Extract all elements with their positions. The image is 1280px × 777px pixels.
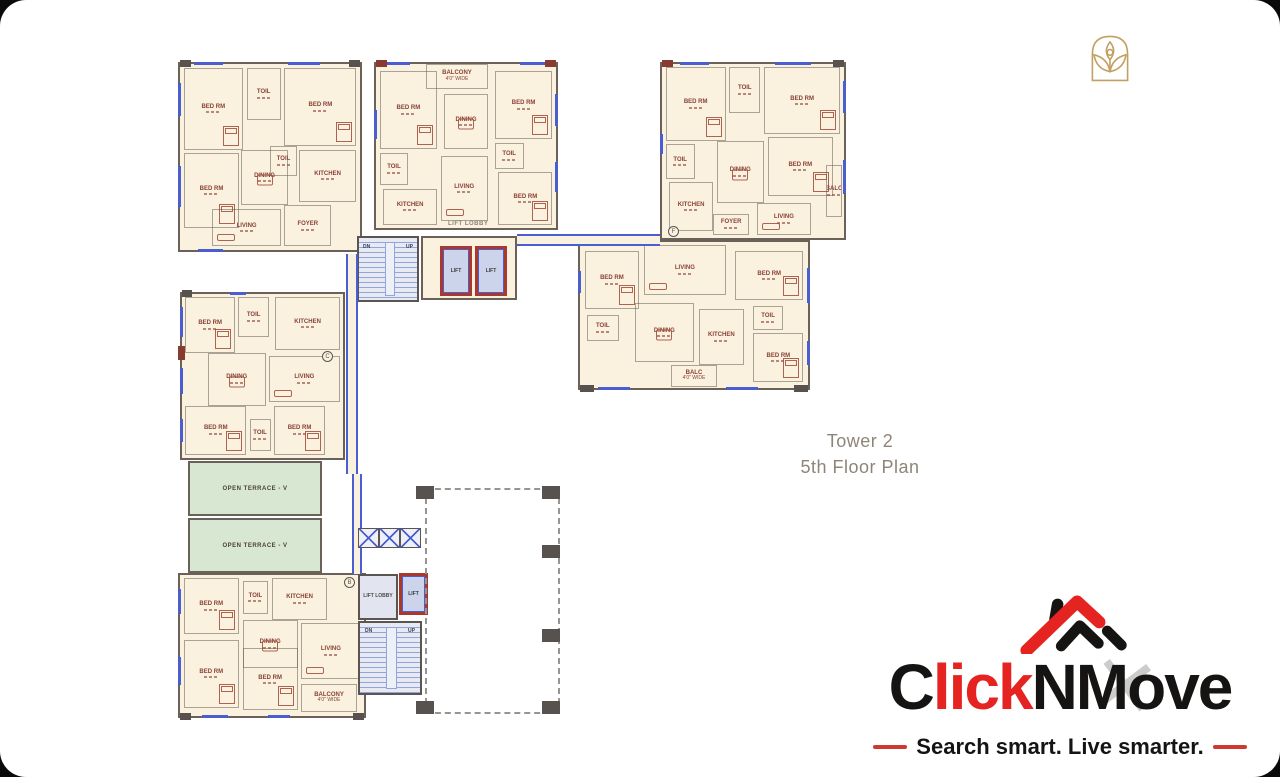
room-label: FOYER (721, 219, 742, 226)
wall-column (182, 290, 192, 297)
corridor-spine-lower (352, 474, 362, 574)
window-strip (180, 368, 183, 394)
room-dim-mark (257, 97, 271, 99)
room-dim-mark (209, 433, 223, 435)
room-toil: TOIL (238, 297, 269, 336)
bed-furniture (783, 276, 799, 296)
window-strip (726, 387, 758, 390)
room-dim-mark (678, 273, 692, 275)
terrace-label: OPEN TERRACE - V (222, 486, 287, 492)
room-dining: DINING (444, 94, 487, 150)
column (542, 701, 560, 714)
wing-middle-left: BED RMTOILKITCHENDININGLIVINGBED RMTOILB… (180, 292, 345, 460)
bed-furniture (820, 110, 836, 130)
window-strip (807, 341, 810, 364)
wall-column (180, 713, 191, 720)
window-strip (598, 387, 630, 390)
bed-furniture (706, 117, 722, 137)
room-label: BED RM (757, 271, 781, 278)
room-kitchen: KITCHEN (275, 297, 339, 349)
window-strip (180, 419, 183, 442)
room-dim-mark (313, 110, 327, 112)
window-strip (180, 307, 183, 337)
room-dim-mark (263, 682, 277, 684)
room-foyer: FOYER (713, 214, 749, 235)
room-label: FOYER (297, 221, 318, 228)
room-living: LIVING (441, 156, 488, 222)
south-lift-lobby: LIFT LOBBY (358, 574, 398, 620)
room-label: BED RM (397, 105, 421, 112)
void-outline (425, 488, 560, 714)
room-dim-mark (387, 172, 401, 174)
bed-furniture (223, 126, 239, 146)
room-label: TOIL (596, 323, 610, 330)
corridor-east (517, 234, 660, 246)
room-dim-mark (247, 320, 261, 322)
room-kitchen: KITCHEN (669, 182, 713, 231)
room-dim-mark (204, 609, 218, 611)
room-dim-mark (293, 602, 307, 604)
room-toil: TOIL (729, 67, 760, 112)
shaft-cell (400, 528, 421, 548)
room-dim-mark (301, 326, 315, 328)
bed-furniture (532, 201, 548, 221)
room-label: BED RM (309, 102, 333, 109)
tower-title: Tower 2 5th Floor Plan (770, 428, 950, 480)
room-bed-rm: BED RM (753, 333, 803, 383)
room-dim-mark (321, 178, 335, 180)
sofa-furniture (649, 283, 667, 290)
room-dim-mark (596, 331, 610, 333)
room-bed-rm: BED RM (184, 640, 239, 708)
room-label: KITCHEN (314, 171, 341, 178)
room-living: LIVING (757, 203, 812, 234)
room-dim-mark (714, 340, 728, 342)
room-dim-mark (248, 600, 262, 602)
room-toil: TOIL (753, 306, 783, 329)
window-strip (194, 62, 223, 65)
lift-3-label: LIFT (408, 591, 419, 597)
room-dim-mark (297, 382, 311, 384)
developer-emblem-icon (1086, 31, 1134, 85)
room-dim-mark (795, 103, 809, 105)
room-dim-mark (253, 438, 267, 440)
room-bed-rm: BED RM (185, 297, 235, 353)
room-kitchen: KITCHEN (699, 309, 745, 364)
column (542, 545, 560, 558)
sofa-furniture (274, 390, 292, 397)
room-bed-rm: BED RM (274, 406, 326, 455)
window-strip (385, 62, 410, 65)
room-label: TOIL (253, 430, 267, 437)
service-shafts (358, 528, 421, 548)
bed-furniture (417, 125, 433, 145)
room-bed-rm: BED RM (666, 67, 726, 140)
window-strip (660, 134, 663, 155)
room-dim-mark (502, 159, 516, 161)
room-dim-mark (762, 278, 776, 280)
window-strip (230, 292, 246, 295)
room-dim-mark (301, 229, 315, 231)
window-strip (843, 81, 846, 112)
reference-marker: C (322, 351, 333, 362)
stair-dn-label: DN (365, 628, 372, 634)
room-dim-mark (827, 194, 841, 196)
room-label: LIVING (774, 214, 794, 221)
tagline-dash-left (873, 745, 907, 749)
room-label: LIVING (454, 184, 474, 191)
wall-column (353, 713, 364, 720)
room-bed-rm: BED RM (185, 406, 246, 455)
room-balc: BALC (826, 165, 842, 217)
lift-2-label: LIFT (486, 268, 497, 274)
open-terrace: OPEN TERRACE - V (188, 518, 322, 573)
room-label: TOIL (761, 313, 775, 320)
room-bed-rm: BED RM (495, 71, 553, 140)
sofa-furniture (762, 223, 780, 230)
sofa-furniture (306, 667, 324, 674)
room-dim-mark (761, 321, 775, 323)
room-toil: TOIL (666, 144, 695, 179)
room-kitchen: KITCHEN (272, 578, 327, 620)
room-label: LIVING (321, 646, 341, 653)
column (416, 486, 434, 499)
room-label: TOIL (247, 312, 261, 319)
corridor-spine (346, 254, 358, 474)
bed-furniture (619, 285, 635, 305)
window-strip (178, 589, 181, 614)
room-kitchen: KITCHEN (299, 150, 357, 202)
tagline-dash-right (1213, 745, 1247, 749)
reference-marker: F (668, 226, 679, 237)
room-dim-mark (206, 111, 220, 113)
sofa-furniture (446, 209, 464, 216)
room-dining: DINING (635, 303, 694, 361)
room-bed-rm: BED RM (498, 172, 552, 224)
room-label: TOIL (387, 164, 401, 171)
window-strip (202, 715, 228, 718)
wall-column (349, 60, 360, 67)
brand-word-part2: lick (933, 651, 1032, 723)
terrace-label: OPEN TERRACE - V (222, 543, 287, 549)
tower-title-line1: Tower 2 (770, 428, 950, 454)
room-balcony: BALCONY4'0" WIDE (301, 684, 356, 712)
window-strip (843, 160, 846, 195)
wing-top-right: BED RMTOILBED RMTOILKITCHENDININGBED RML… (660, 62, 846, 240)
tower-title-line2: 5th Floor Plan (770, 454, 950, 480)
room-toil: TOIL (250, 419, 271, 452)
bed-furniture (783, 358, 799, 378)
bed-furniture (226, 431, 242, 451)
room-balc: BALC4'0" WIDE (671, 365, 717, 387)
room-label: BED RM (600, 275, 624, 282)
brand-tagline: Search smart. Live smarter. (916, 734, 1203, 760)
room-dining: DINING (208, 353, 266, 405)
room-living: LIVING (644, 245, 726, 295)
room-bed-rm: BED RM (243, 648, 298, 710)
room-dim-label: 4'0" WIDE (683, 376, 706, 382)
shaft-cell (358, 528, 379, 548)
room-label: BED RM (788, 162, 812, 169)
wall-column (580, 385, 594, 392)
bed-furniture (305, 431, 321, 451)
window-strip (578, 271, 581, 293)
window-strip (680, 62, 709, 65)
window-strip (178, 83, 181, 116)
window-strip (178, 657, 181, 685)
room-label: BED RM (514, 194, 538, 201)
room-label: BED RM (199, 669, 223, 676)
south-lift-lobby-label: LIFT LOBBY (363, 594, 392, 600)
room-bed-rm: BED RM (735, 251, 803, 301)
table-furniture (458, 119, 474, 130)
brand-wordmark: ClickNMove (858, 650, 1262, 724)
room-label: BED RM (258, 675, 282, 682)
sofa-furniture (217, 234, 235, 241)
room-label: TOIL (249, 593, 263, 600)
window-strip (374, 110, 377, 140)
room-label: KITCHEN (286, 594, 313, 601)
room-label: BED RM (198, 320, 222, 327)
room-living: LIVING (269, 356, 340, 402)
room-dim-mark (689, 107, 703, 109)
bed-furniture (278, 686, 294, 706)
bed-furniture (336, 122, 352, 142)
room-label: LIVING (237, 223, 257, 230)
window-strip (198, 249, 223, 252)
lift-1-label: LIFT (451, 268, 462, 274)
window-strip (268, 715, 290, 718)
room-dim-label: 4'0" WIDE (446, 77, 469, 83)
room-dim-mark (204, 193, 218, 195)
wall-column (833, 60, 844, 67)
room-dim-mark (204, 676, 218, 678)
wing-bottom-left: BED RMTOILKITCHENDININGLIVINGBED RMBED R… (178, 573, 366, 718)
room-label: BED RM (200, 186, 224, 193)
shaft-cell (379, 528, 400, 548)
bed-furniture (532, 115, 548, 135)
table-furniture (732, 169, 748, 180)
room-foyer: FOYER (284, 205, 331, 246)
room-dim-mark (401, 113, 415, 115)
column (542, 486, 560, 499)
window-strip (775, 62, 811, 65)
room-label: LIVING (294, 374, 314, 381)
window-strip (178, 166, 181, 207)
room-bed-rm: BED RM (380, 71, 438, 150)
window-strip (555, 162, 558, 192)
room-dim-mark (724, 227, 738, 229)
open-terrace: OPEN TERRACE - V (188, 461, 322, 516)
brand-word-part3: NMove (1032, 651, 1232, 723)
floor-plan-card: BED RMTOILBED RMBED RMTOILDININGKITCHENL… (0, 0, 1280, 777)
room-label: TOIL (257, 89, 271, 96)
room-dim-mark (240, 230, 254, 232)
room-toil: TOIL (495, 143, 524, 169)
brand-word-part1: C (889, 651, 933, 723)
room-dim-mark (324, 654, 338, 656)
room-living: LIVING (212, 209, 280, 246)
room-bed-rm: BED RM (768, 137, 834, 196)
wing-top-middle: BALCONY4'0" WIDEBED RMBED RMDININGTOILKI… (374, 62, 558, 230)
room-kitchen: KITCHEN (383, 189, 437, 225)
wall-column (545, 60, 556, 67)
room-dim-mark (793, 169, 807, 171)
room-bed-rm: BED RM (284, 68, 356, 146)
room-label: BED RM (204, 425, 228, 432)
room-label: KITCHEN (294, 319, 321, 326)
window-strip (288, 62, 320, 65)
room-label: BED RM (512, 100, 536, 107)
room-label: TOIL (673, 157, 687, 164)
bed-furniture (219, 684, 235, 704)
lift-2: LIFT (475, 246, 507, 296)
reference-marker: B (344, 577, 355, 588)
room-label: BED RM (201, 104, 225, 111)
room-dim-mark (518, 201, 532, 203)
lift-lobby-label: LIFT LOBBY (448, 221, 488, 227)
wall-column (376, 60, 387, 67)
wing-top-left: BED RMTOILBED RMBED RMTOILDININGKITCHENL… (178, 62, 362, 252)
window-strip (520, 62, 545, 65)
stair-up-label: UP (408, 628, 415, 634)
room-dining: DINING (241, 150, 288, 206)
lift-1: LIFT (440, 246, 472, 296)
room-dim-mark (738, 93, 752, 95)
room-dim-mark (457, 191, 471, 193)
room-bed-rm: BED RM (184, 68, 243, 150)
room-label: TOIL (738, 85, 752, 92)
bed-furniture (215, 329, 231, 349)
room-label: BALC (826, 186, 842, 193)
room-toil: TOIL (380, 153, 409, 186)
wall-column (662, 60, 673, 67)
room-toil: TOIL (247, 68, 281, 120)
room-toil: TOIL (243, 581, 269, 615)
column (416, 701, 434, 714)
south-staircase: UP DN (358, 621, 422, 695)
room-label: BED RM (199, 601, 223, 608)
tagline-row: Search smart. Live smarter. (858, 734, 1262, 760)
room-label: BED RM (684, 99, 708, 106)
wall-column (794, 385, 808, 392)
stair-dn-label: DN (363, 244, 370, 250)
column (542, 629, 560, 642)
room-dim-label: 4'0" WIDE (318, 698, 341, 704)
room-dim-mark (673, 164, 687, 166)
room-bed-rm: BED RM (585, 251, 640, 309)
room-dim-mark (403, 209, 417, 211)
window-strip (555, 94, 558, 127)
bed-furniture (219, 610, 235, 630)
room-dining: DINING (717, 141, 764, 204)
room-label: BED RM (790, 96, 814, 103)
lift-3: LIFT (399, 573, 428, 615)
room-bed-rm: BED RM (184, 578, 239, 634)
window-strip (807, 268, 810, 303)
room-label: TOIL (502, 151, 516, 158)
wing-middle-right: BED RMLIVINGBED RMTOILDININGKITCHENTOILB… (578, 240, 810, 390)
room-dim-mark (605, 283, 619, 285)
room-label: KITCHEN (397, 202, 424, 209)
room-dim-mark (517, 108, 531, 110)
room-living: LIVING (301, 623, 360, 679)
table-furniture (229, 376, 245, 387)
wall-column (180, 60, 191, 67)
room-dim-mark (684, 209, 698, 211)
room-label: KITCHEN (708, 332, 735, 339)
room-bed-rm: BED RM (764, 67, 840, 133)
room-label: LIVING (675, 265, 695, 272)
table-furniture (656, 330, 672, 341)
stair-up-label: UP (406, 244, 413, 250)
room-label: KITCHEN (678, 202, 705, 209)
wall-column (178, 346, 185, 359)
table-furniture (257, 175, 273, 186)
room-toil: TOIL (587, 315, 619, 341)
central-staircase: UP DN (357, 236, 419, 302)
